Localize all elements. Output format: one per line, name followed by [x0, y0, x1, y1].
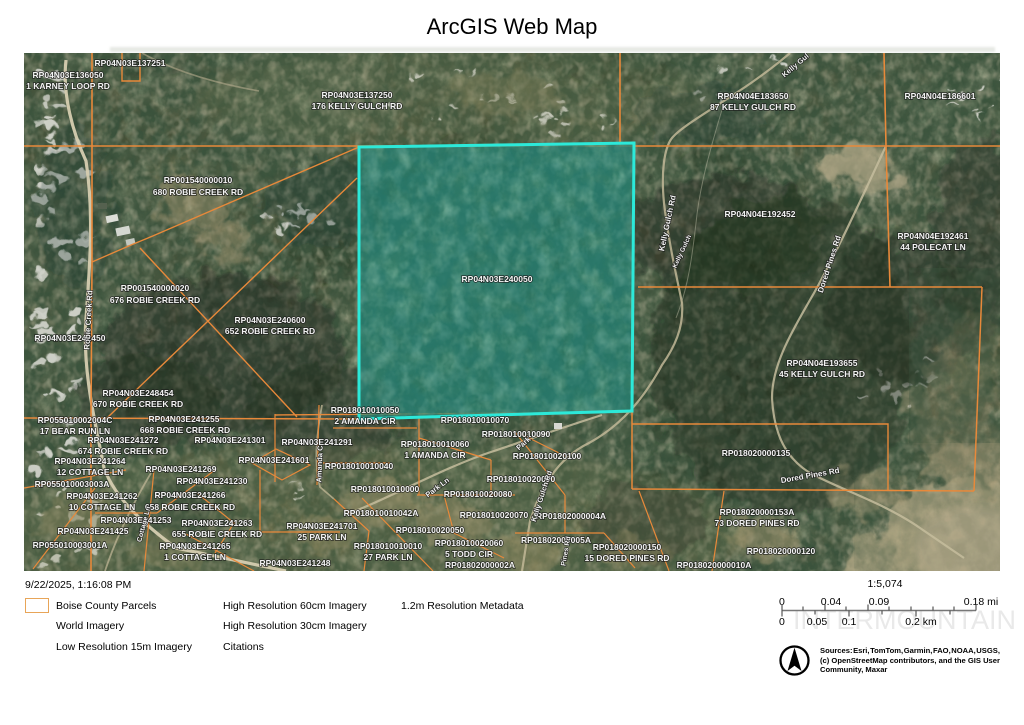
svg-text:RP04N03E241262: RP04N03E241262 [67, 491, 138, 501]
svg-text:RP04N03E241255: RP04N03E241255 [149, 414, 220, 424]
svg-text:1 COTTAGE LN: 1 COTTAGE LN [164, 552, 226, 562]
svg-text:RP04N03E136050: RP04N03E136050 [33, 70, 104, 80]
svg-text:RP018010010060: RP018010010060 [401, 439, 470, 449]
svg-text:RP04N03E240050: RP04N03E240050 [462, 274, 533, 284]
svg-text:0.05: 0.05 [807, 616, 828, 628]
svg-text:0.04: 0.04 [821, 596, 842, 608]
svg-text:RP04N03E248454: RP04N03E248454 [103, 388, 174, 398]
svg-text:RP018010010010: RP018010010010 [354, 541, 423, 551]
svg-text:RP01802000002A: RP01802000002A [445, 560, 515, 570]
svg-text:RP055010003001A: RP055010003001A [33, 540, 108, 550]
svg-text:RP04N03E240600: RP04N03E240600 [235, 315, 306, 325]
svg-text:RP04N04E192452: RP04N04E192452 [725, 209, 796, 219]
svg-text:RP04N04E193655: RP04N04E193655 [787, 358, 858, 368]
svg-text:RP018010020060: RP018010020060 [435, 538, 504, 548]
svg-text:RP04N03E241701: RP04N03E241701 [287, 521, 358, 531]
svg-text:RP018010010040: RP018010010040 [325, 461, 394, 471]
svg-text:RP018010020100: RP018010020100 [513, 451, 582, 461]
svg-text:5 TODD CIR: 5 TODD CIR [445, 549, 493, 559]
svg-text:0.09: 0.09 [869, 596, 890, 608]
svg-text:0: 0 [779, 616, 785, 628]
svg-text:RP04N04E183650: RP04N04E183650 [718, 91, 789, 101]
svg-text:87 KELLY GULCH RD: 87 KELLY GULCH RD [710, 102, 796, 112]
svg-text:RP04N03E137251: RP04N03E137251 [95, 58, 166, 68]
svg-text:25 PARK LN: 25 PARK LN [298, 532, 347, 542]
svg-text:1 KARNEY LOOP RD: 1 KARNEY LOOP RD [26, 81, 110, 91]
svg-text:RP001540000010: RP001540000010 [164, 175, 233, 185]
svg-text:RP01802000004A: RP01802000004A [536, 511, 606, 521]
svg-text:12 COTTAGE LN: 12 COTTAGE LN [57, 467, 123, 477]
svg-text:652 ROBIE CREEK RD: 652 ROBIE CREEK RD [225, 326, 315, 336]
svg-text:RP04N03E241301: RP04N03E241301 [195, 435, 266, 445]
svg-text:RP018010010000: RP018010010000 [351, 484, 420, 494]
svg-text:RP04N03E241253: RP04N03E241253 [101, 515, 172, 525]
svg-text:RP04N03E241265: RP04N03E241265 [160, 541, 231, 551]
svg-text:RP018020000120: RP018020000120 [747, 546, 816, 556]
svg-text:RP04N03E241601: RP04N03E241601 [239, 455, 310, 465]
svg-text:676 ROBIE CREEK RD: 676 ROBIE CREEK RD [110, 295, 200, 305]
svg-text:RP018020000153A: RP018020000153A [720, 507, 795, 517]
svg-text:RP04N03E137250: RP04N03E137250 [322, 90, 393, 100]
svg-text:2 AMANDA CIR: 2 AMANDA CIR [334, 416, 395, 426]
svg-text:RP04N03E241272: RP04N03E241272 [88, 435, 159, 445]
svg-text:670 ROBIE CREEK RD: 670 ROBIE CREEK RD [93, 399, 183, 409]
svg-text:RP04N03E242450: RP04N03E242450 [35, 333, 106, 343]
svg-text:RP018020000010A: RP018020000010A [677, 560, 752, 570]
svg-text:RP04N03E241269: RP04N03E241269 [146, 464, 217, 474]
svg-text:RP001540000020: RP001540000020 [121, 283, 190, 293]
svg-text:RP04N04E186601: RP04N04E186601 [905, 91, 976, 101]
svg-text:RP018010020070: RP018010020070 [460, 510, 529, 520]
svg-text:RP018010010090: RP018010010090 [482, 429, 551, 439]
svg-text:15 DORED PINES RD: 15 DORED PINES RD [584, 553, 669, 563]
svg-text:RP018020000150: RP018020000150 [593, 542, 662, 552]
svg-text:RP018010020080: RP018010020080 [444, 489, 513, 499]
svg-text:RP04N03E241263: RP04N03E241263 [182, 518, 253, 528]
svg-text:RP04N03E241248: RP04N03E241248 [260, 558, 331, 568]
svg-text:45 KELLY GULCH RD: 45 KELLY GULCH RD [779, 369, 865, 379]
svg-text:RP04N03E241264: RP04N03E241264 [55, 456, 126, 466]
svg-text:RP04N03E241425: RP04N03E241425 [58, 526, 129, 536]
svg-text:RP018010020050: RP018010020050 [396, 525, 465, 535]
svg-text:44 POLECAT LN: 44 POLECAT LN [900, 242, 966, 252]
svg-text:0.2 km: 0.2 km [905, 616, 937, 628]
svg-text:674 ROBIE CREEK RD: 674 ROBIE CREEK RD [78, 446, 168, 456]
svg-text:RP018010010050: RP018010010050 [331, 405, 400, 415]
svg-text:RP055010003003A: RP055010003003A [35, 479, 110, 489]
svg-text:668 ROBIE CREEK RD: 668 ROBIE CREEK RD [140, 425, 230, 435]
svg-text:27 PARK LN: 27 PARK LN [364, 552, 413, 562]
svg-text:680 ROBIE CREEK RD: 680 ROBIE CREEK RD [153, 187, 243, 197]
svg-text:RP04N03E241266: RP04N03E241266 [155, 490, 226, 500]
svg-text:RP04N04E192461: RP04N04E192461 [898, 231, 969, 241]
svg-text:RP018010010070: RP018010010070 [441, 415, 510, 425]
svg-text:RP018020000135: RP018020000135 [722, 448, 791, 458]
svg-text:0.1: 0.1 [842, 616, 857, 628]
svg-text:176 KELLY GULCH RD: 176 KELLY GULCH RD [312, 101, 403, 111]
svg-text:655 ROBIE CREEK RD: 655 ROBIE CREEK RD [172, 529, 262, 539]
svg-text:RP01802000005A: RP01802000005A [521, 535, 591, 545]
svg-text:658 ROBIE CREEK RD: 658 ROBIE CREEK RD [145, 502, 235, 512]
svg-text:73 DORED PINES RD: 73 DORED PINES RD [714, 518, 799, 528]
svg-text:Amanda C: Amanda C [314, 445, 324, 483]
svg-text:RP04N03E241230: RP04N03E241230 [177, 476, 248, 486]
svg-text:RP055010002004C: RP055010002004C [38, 415, 113, 425]
svg-text:1 AMANDA CIR: 1 AMANDA CIR [404, 450, 465, 460]
svg-text:0.18 mi: 0.18 mi [964, 596, 998, 608]
svg-text:RP018010010042A: RP018010010042A [344, 508, 419, 518]
svg-text:10 COTTAGE LN: 10 COTTAGE LN [69, 502, 135, 512]
